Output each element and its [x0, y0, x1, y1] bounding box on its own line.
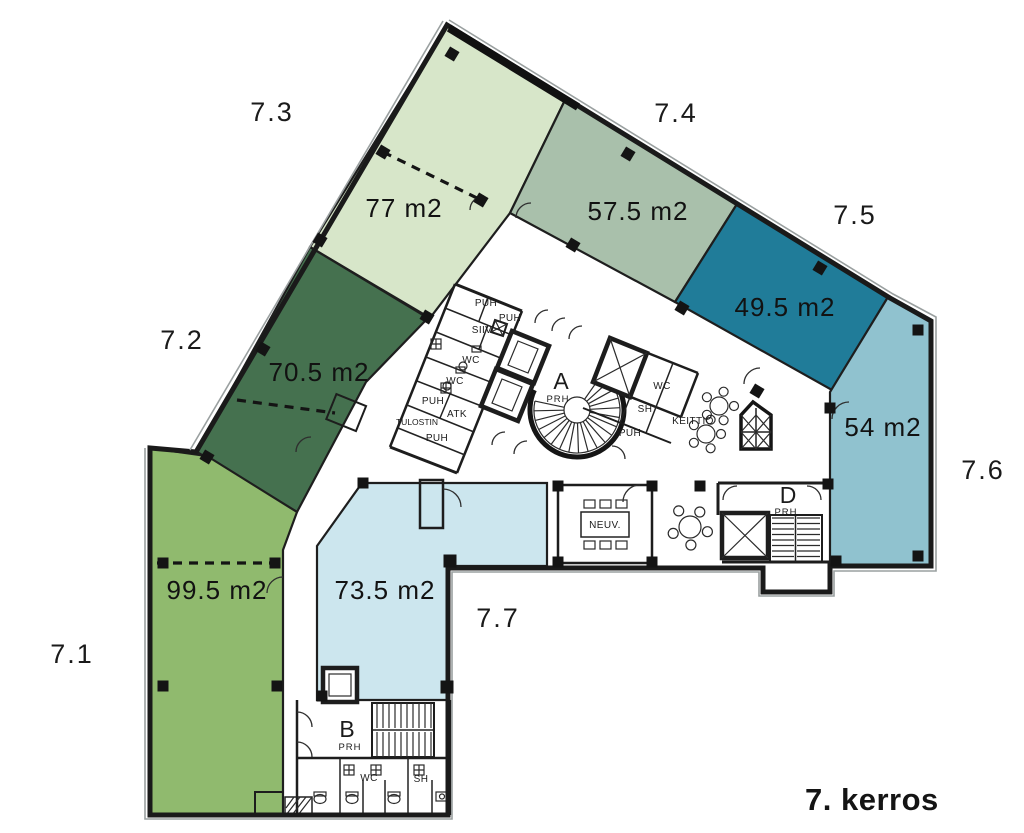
stair-label-d-prh: PRH [774, 507, 797, 518]
room-label-puh-1: PUH [475, 298, 497, 309]
area-label-7.7: 73.5 m2 [335, 575, 436, 605]
room-label-neuv: NEUV. [589, 520, 621, 531]
room-label-wc-1: WC [462, 355, 479, 366]
zone-label-7.6: 7.6 [961, 455, 1005, 485]
zone-label-7.5: 7.5 [833, 200, 877, 230]
room-label-siiv: SIIV [472, 325, 493, 336]
room-label-keittio: KEITTIÖ [672, 415, 714, 427]
zone-area-7.1[interactable] [150, 448, 297, 815]
room-label-puh-5: PUH [619, 428, 641, 439]
room-label-sh-1: SH [638, 404, 653, 415]
zone-label-7.4: 7.4 [654, 98, 698, 128]
floor-plan-svg: 7.3 7.4 7.5 7.6 7.2 7.1 7.7 77 m2 57.5 m… [0, 0, 1024, 828]
area-label-7.6: 54 m2 [844, 412, 921, 442]
zone-label-7.3: 7.3 [250, 97, 294, 127]
stair-label-b: B [339, 716, 354, 742]
stair-label-d: D [780, 482, 797, 508]
room-label-atk: ATK [447, 409, 467, 420]
stair-label-a-prh: PRH [546, 394, 569, 405]
elevator-d [722, 513, 768, 558]
elevator-b [323, 668, 357, 702]
room-label-wc-4: WC [360, 773, 377, 784]
area-label-7.1: 99.5 m2 [167, 575, 268, 605]
room-label-puh-4: PUH [426, 433, 448, 444]
area-label-7.4: 57.5 m2 [588, 196, 689, 226]
stair-label-a: A [553, 368, 569, 394]
area-label-7.3: 77 m2 [365, 193, 442, 223]
floor-plan-page: 7.3 7.4 7.5 7.6 7.2 7.1 7.7 77 m2 57.5 m… [0, 0, 1024, 828]
room-label-sh-2: SH [414, 774, 429, 785]
zone-label-7.7: 7.7 [476, 603, 520, 633]
zone-label-7.2: 7.2 [160, 325, 204, 355]
room-label-puh-3: PUH [422, 396, 444, 407]
room-label-tulostin: TULOSTIN [396, 417, 438, 427]
area-label-7.2: 70.5 m2 [269, 357, 370, 387]
room-label-wc-2: WC [446, 376, 463, 387]
stair-label-b-prh: PRH [338, 742, 361, 753]
room-label-puh-2: PUH [499, 313, 521, 324]
zone-label-7.1: 7.1 [50, 639, 94, 669]
area-label-7.5: 49.5 m2 [735, 292, 836, 322]
page-title: 7. kerros [805, 782, 939, 817]
room-label-wc-3: WC [653, 381, 670, 392]
